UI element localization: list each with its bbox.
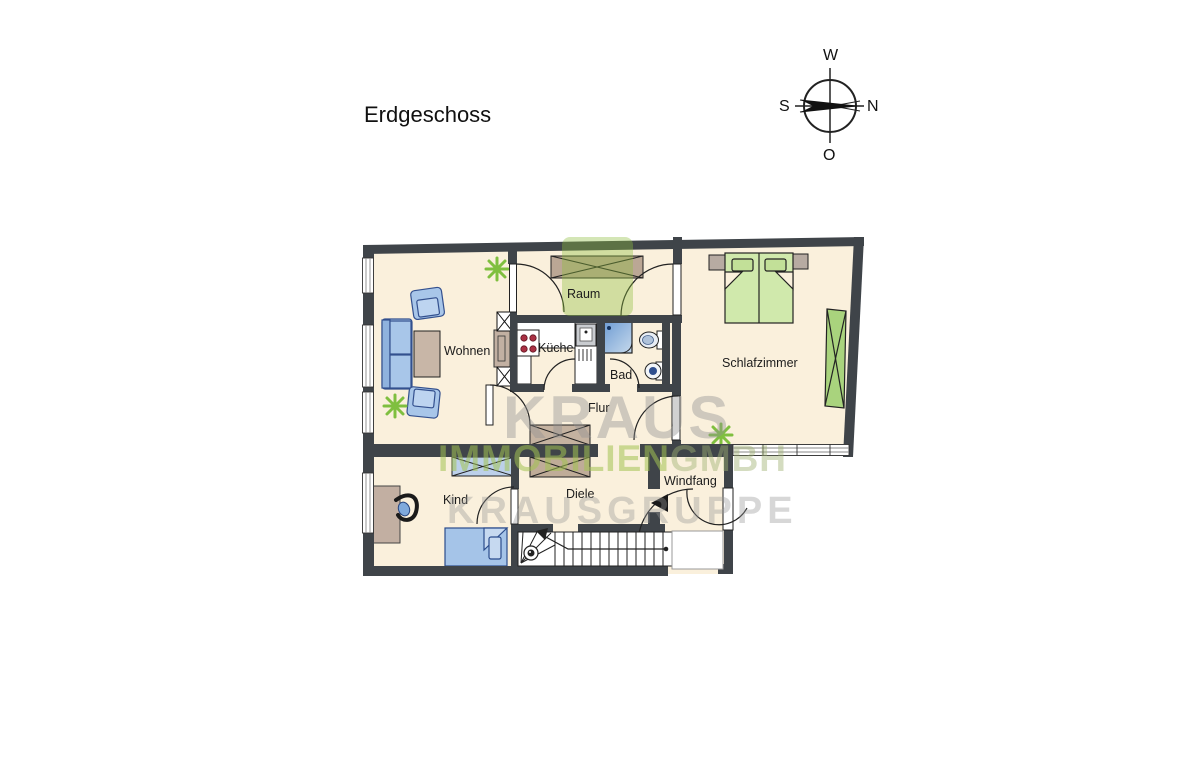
coffee-table [414,331,440,377]
wall-cabinet-bottom [497,367,512,386]
staircase [518,528,672,566]
room-label-kind: Kind [443,493,468,507]
room-label-schlafzimmer: Schlafzimmer [722,356,798,370]
room-label-raum: Raum [567,287,600,301]
room-label-wohnen: Wohnen [444,344,490,358]
wardrobe-flur [530,425,590,445]
plant-icon [384,395,406,417]
compass-label-south: S [779,98,790,116]
washbasin [645,362,664,380]
room-label-diele: Diele [566,487,595,501]
room-label-kueche: Küche [538,341,573,355]
wall-cabinet-top [497,312,512,331]
compass-icon [795,68,864,143]
floor-plan-drawing [0,0,1200,759]
compass-label-east: O [823,147,835,165]
wardrobe-kind [452,457,514,476]
room-label-bad: Bad [610,368,632,382]
compass-label-north: N [867,98,879,116]
nightstand-right [792,254,808,269]
floor-plan-page: { "title": "Erdgeschoss", "compass": { "… [0,0,1200,759]
kind-bed [445,528,507,566]
watermark-logo [562,237,633,316]
room-label-windfang: Windfang [664,474,717,488]
room-label-flur: Flur [588,401,610,415]
armchair-bottom [407,386,441,418]
fridge [576,324,596,346]
compass-label-west: W [823,47,838,65]
wardrobe-schlafzimmer [825,309,846,408]
sofa [382,319,412,389]
page-title: Erdgeschoss [364,102,491,128]
sideboard [494,330,510,367]
toilet [640,331,665,349]
stair-landing [672,531,723,569]
double-bed [725,253,793,323]
plant-icon [486,258,508,280]
armchair-top [410,287,445,320]
window-band-south [733,445,849,456]
nightstand-left [709,255,725,270]
plant-icon [710,424,732,446]
desk [371,486,400,543]
stove [517,330,539,356]
shower [603,322,632,353]
wardrobe-diele [530,457,590,477]
